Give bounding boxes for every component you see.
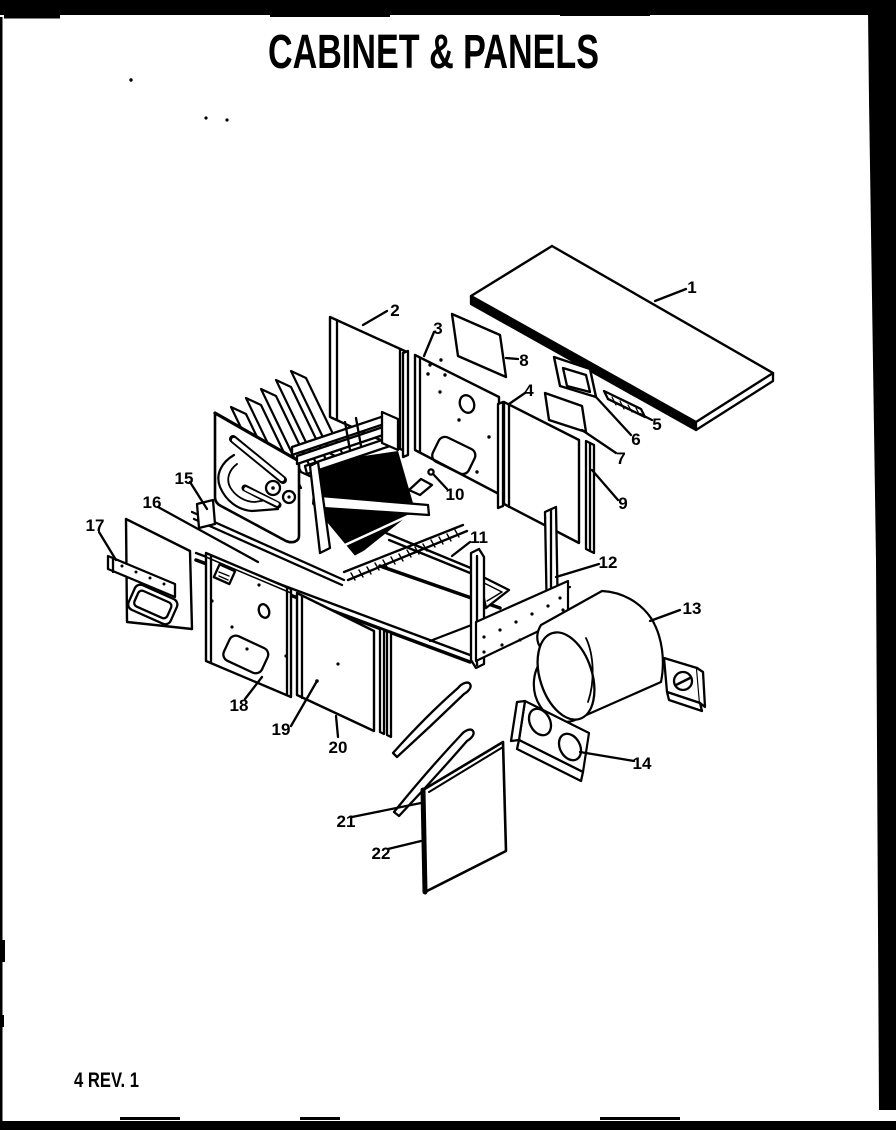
svg-text:8: 8	[519, 351, 528, 370]
svg-text:1: 1	[687, 278, 696, 297]
svg-text:17: 17	[86, 516, 105, 535]
svg-text:6: 6	[631, 430, 640, 449]
svg-text:12: 12	[599, 553, 618, 572]
svg-text:18: 18	[230, 696, 249, 715]
svg-text:13: 13	[683, 599, 702, 618]
svg-text:19: 19	[272, 720, 291, 739]
svg-text:22: 22	[372, 844, 391, 863]
svg-text:21: 21	[337, 812, 356, 831]
svg-text:14: 14	[633, 754, 652, 773]
svg-text:7: 7	[616, 449, 625, 468]
svg-text:CABINET & PANELS: CABINET & PANELS	[268, 26, 599, 79]
svg-text:3: 3	[433, 319, 442, 338]
svg-text:2: 2	[390, 301, 399, 320]
svg-text:9: 9	[618, 494, 627, 513]
svg-text:10: 10	[446, 485, 465, 504]
svg-text:20: 20	[329, 738, 348, 757]
svg-text:15: 15	[175, 469, 194, 488]
svg-text:4 REV. 1: 4 REV. 1	[74, 1069, 139, 1092]
svg-text:11: 11	[470, 528, 488, 547]
svg-text:4: 4	[524, 381, 534, 400]
svg-text:16: 16	[143, 493, 162, 512]
svg-text:5: 5	[652, 415, 661, 434]
